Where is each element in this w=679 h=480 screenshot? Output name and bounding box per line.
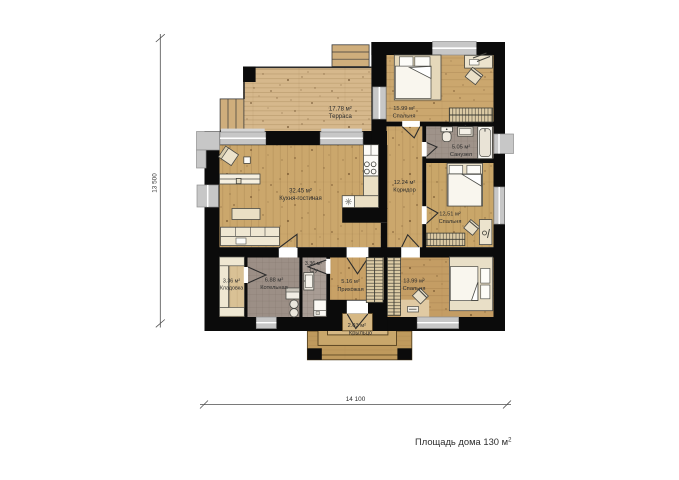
svg-text:32.45 м²: 32.45 м² [289, 189, 312, 195]
svg-text:Площадь дома 130 м2: Площадь дома 130 м2 [415, 436, 512, 447]
svg-text:17.78 м²: 17.78 м² [329, 107, 352, 113]
svg-text:3.36 м²: 3.36 м² [223, 278, 240, 284]
svg-text:Спальня: Спальня [439, 219, 462, 225]
svg-text:13 500: 13 500 [152, 173, 159, 193]
svg-text:Терраса: Терраса [329, 114, 353, 120]
svg-text:14 100: 14 100 [346, 396, 366, 403]
svg-text:Санузел: Санузел [450, 152, 472, 158]
svg-text:Коридор: Коридор [393, 188, 415, 194]
svg-text:3.36 м²: 3.36 м² [305, 261, 322, 267]
svg-text:Спальня: Спальня [393, 113, 416, 119]
svg-text:Прихожая: Прихожая [337, 287, 363, 293]
svg-text:5.16 м²: 5.16 м² [341, 279, 360, 285]
svg-text:12.51 м²: 12.51 м² [439, 211, 461, 217]
svg-text:Крыльцо: Крыльцо [349, 330, 372, 336]
svg-text:2.03 м²: 2.03 м² [348, 323, 367, 329]
svg-text:Котельная: Котельная [260, 285, 288, 291]
svg-text:Спальня: Спальня [403, 286, 426, 292]
svg-text:С/у: С/у [310, 268, 318, 274]
svg-text:15.99 м²: 15.99 м² [393, 106, 415, 112]
svg-text:Кладовка: Кладовка [220, 285, 243, 291]
svg-text:6.88 м²: 6.88 м² [265, 278, 284, 284]
svg-text:12.24 м²: 12.24 м² [394, 180, 416, 186]
svg-text:Кухня-гостиная: Кухня-гостиная [279, 196, 321, 202]
svg-text:13.99 м²: 13.99 м² [403, 279, 425, 285]
svg-text:5.05 м²: 5.05 м² [452, 145, 471, 151]
